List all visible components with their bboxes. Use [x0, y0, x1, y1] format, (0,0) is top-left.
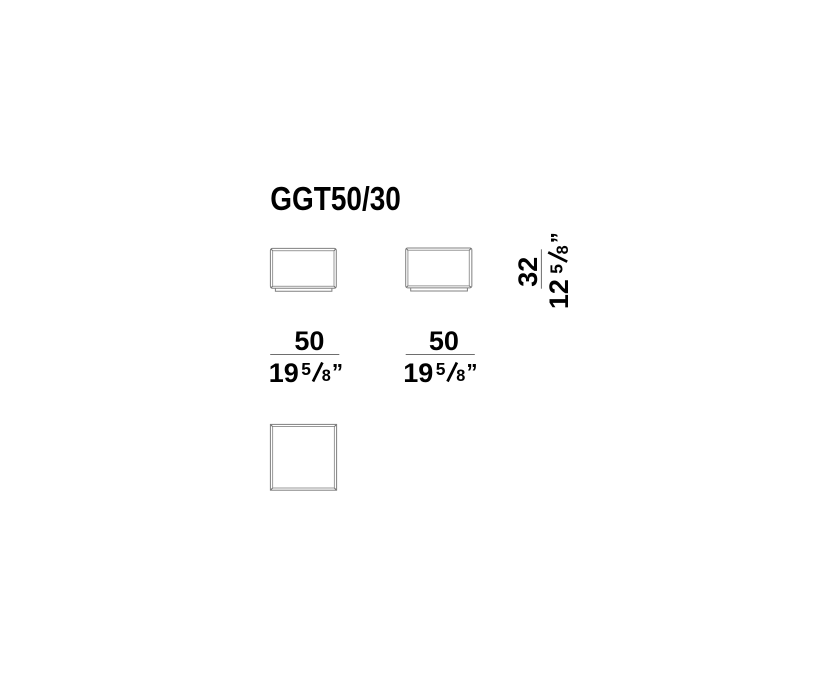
svg-text:”: ” [545, 232, 572, 243]
svg-text:GGT50/30: GGT50/30 [270, 180, 401, 217]
svg-text:8: 8 [554, 245, 572, 254]
svg-text:8: 8 [322, 367, 331, 385]
svg-text:”: ” [332, 359, 343, 386]
svg-text:32: 32 [513, 257, 543, 287]
svg-text:5: 5 [547, 264, 567, 274]
svg-text:”: ” [466, 359, 477, 386]
svg-text:12: 12 [544, 279, 574, 309]
svg-text:19: 19 [269, 358, 299, 388]
svg-text:5: 5 [436, 359, 446, 379]
svg-text:50: 50 [429, 326, 459, 356]
svg-text:8: 8 [456, 367, 465, 385]
svg-text:5: 5 [301, 359, 311, 379]
svg-text:19: 19 [403, 358, 433, 388]
svg-text:50: 50 [294, 326, 324, 356]
